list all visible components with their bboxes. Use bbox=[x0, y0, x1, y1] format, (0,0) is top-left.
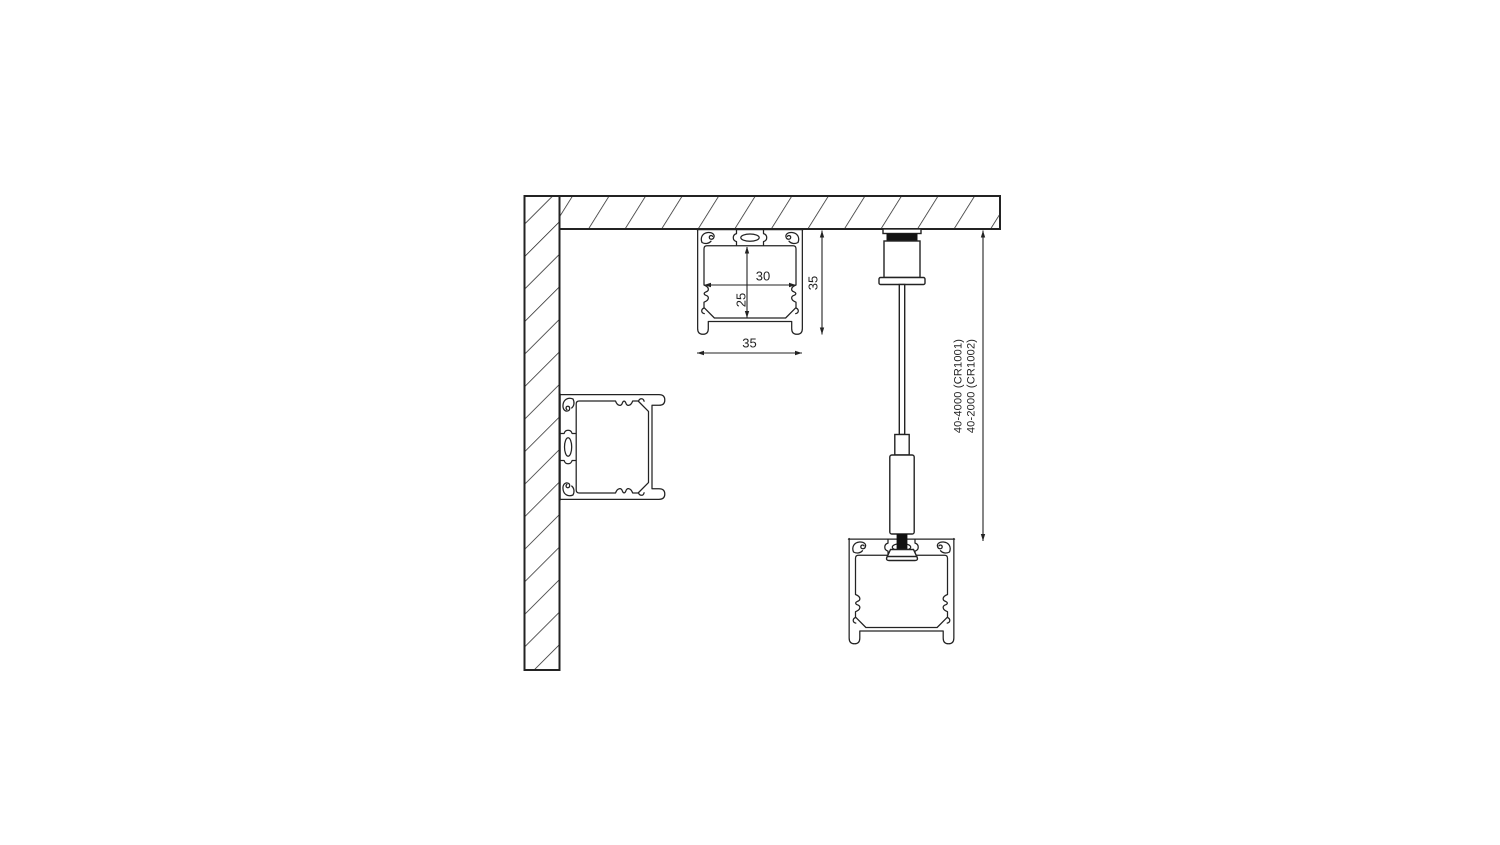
cable-connector bbox=[897, 534, 908, 550]
dim-label-profile-width: 35 bbox=[742, 336, 756, 351]
suspension-kit bbox=[879, 229, 925, 561]
dim-profile-width bbox=[697, 351, 802, 355]
dimension-lines bbox=[697, 231, 985, 542]
suspension-code-label-1: 40-4000 (CR1001) bbox=[953, 339, 965, 433]
profile-mounting-diagram: 30 25 35 35 40-4000 (CR1001) 40-2000 (CR… bbox=[0, 0, 1500, 845]
suspension-canopy bbox=[884, 241, 920, 278]
ceiling-mounted-profile bbox=[697, 229, 803, 334]
dim-label-inner-width: 30 bbox=[756, 269, 770, 284]
ceiling-mounting-plate bbox=[883, 229, 921, 234]
wall-mounted-profile bbox=[560, 394, 665, 500]
wall-section bbox=[525, 196, 560, 670]
dim-label-profile-height: 35 bbox=[806, 276, 821, 290]
suspension-code-label-2: 40-2000 (CR1002) bbox=[966, 339, 978, 433]
ceiling-section bbox=[560, 196, 1001, 229]
cable-grip-washer bbox=[887, 550, 918, 561]
suspension-cable bbox=[899, 285, 904, 435]
canopy-gasket bbox=[887, 234, 918, 242]
dim-suspension-length bbox=[981, 231, 985, 542]
dim-inner-width bbox=[704, 283, 796, 287]
cable-adjuster-nipple bbox=[895, 435, 909, 456]
mounting-diagram-page: 30 25 35 35 40-4000 (CR1001) 40-2000 (CR… bbox=[0, 0, 1500, 845]
canopy-flange bbox=[879, 278, 925, 285]
cable-adjuster-body bbox=[890, 455, 914, 534]
dim-label-inner-height: 25 bbox=[734, 293, 749, 307]
